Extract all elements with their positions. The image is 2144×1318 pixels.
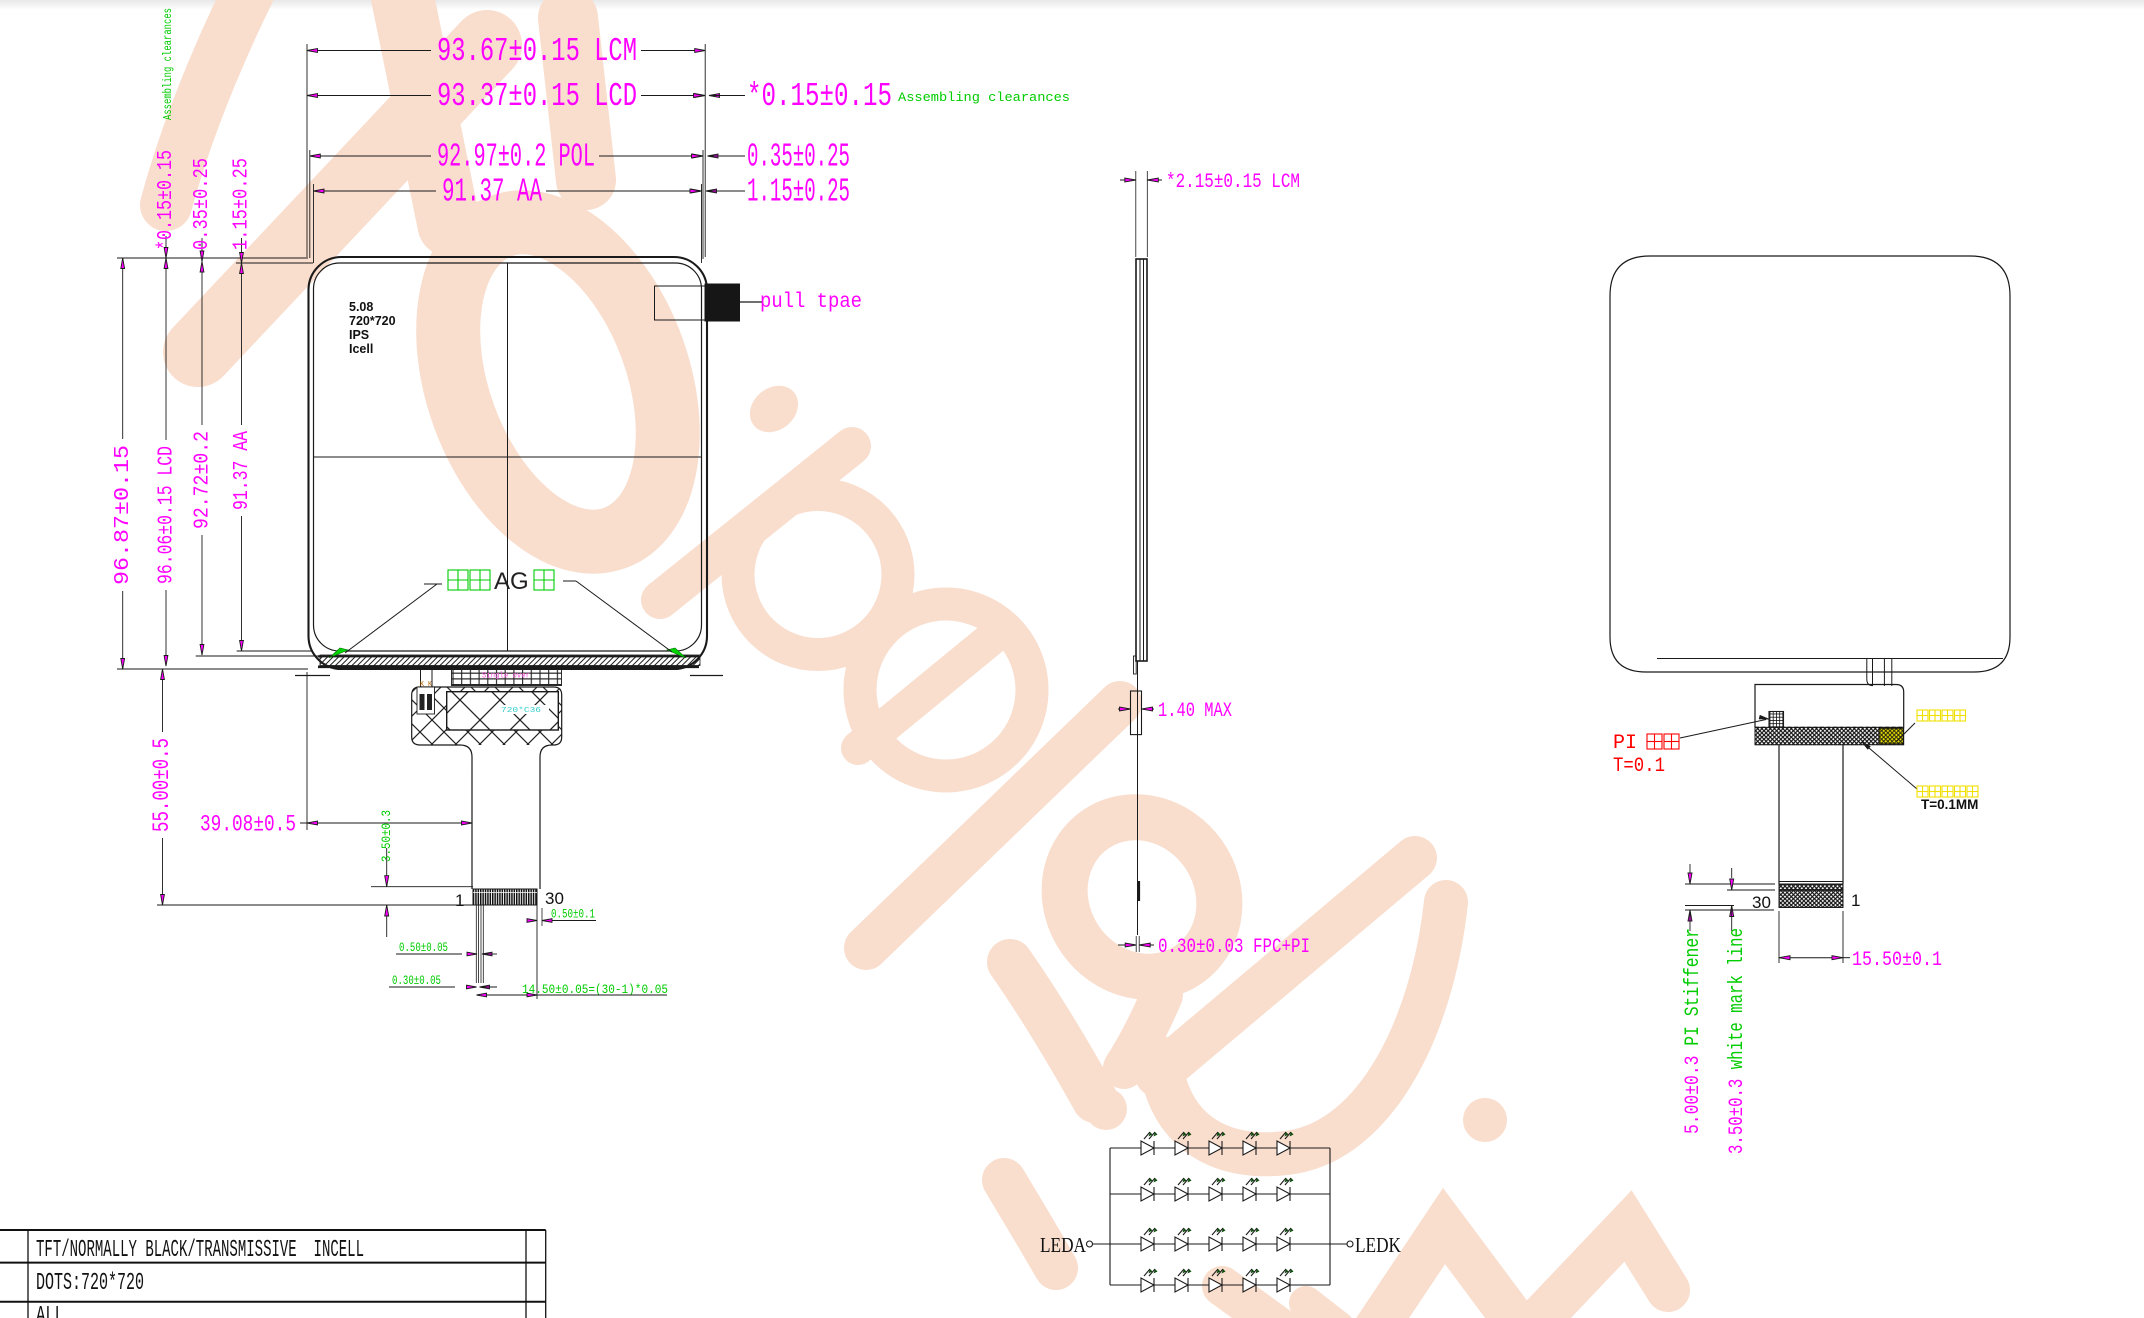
svg-text:1.15±0.25: 1.15±0.25 xyxy=(231,158,254,250)
svg-text:TFT/NORMALLY BLACK/TRANSMISSIV: TFT/NORMALLY BLACK/TRANSMISSIVE INCELL xyxy=(36,1237,364,1264)
svg-text:Single over: Single over xyxy=(482,672,530,681)
svg-text:*0.15±0.15: *0.15±0.15 xyxy=(155,150,178,250)
svg-text:*0.15±0.15: *0.15±0.15 xyxy=(747,78,892,115)
svg-text:93.37±0.15 LCD: 93.37±0.15 LCD xyxy=(437,78,637,115)
svg-text:93.67±0.15 LCM: 93.67±0.15 LCM xyxy=(437,33,637,70)
svg-text:39.08±0.5: 39.08±0.5 xyxy=(200,812,296,838)
svg-text:55.00±0.5: 55.00±0.5 xyxy=(149,738,175,832)
svg-text:0.35±0.25: 0.35±0.25 xyxy=(747,139,850,176)
svg-text:91.37 AA: 91.37 AA xyxy=(442,174,542,211)
svg-text:1.15±0.25: 1.15±0.25 xyxy=(747,174,850,211)
svg-text:Assembling clearances: Assembling clearances xyxy=(898,90,1070,105)
svg-text:IPS: IPS xyxy=(349,328,369,342)
svg-text:96.87±0.15: 96.87±0.15 xyxy=(112,445,135,585)
svg-text:PI: PI xyxy=(1613,732,1649,755)
svg-text:LEDA: LEDA xyxy=(1040,1233,1087,1257)
svg-text:91.37 AA: 91.37 AA xyxy=(231,431,254,510)
svg-text:92.97±0.2 POL: 92.97±0.2 POL xyxy=(437,139,595,176)
svg-text:1: 1 xyxy=(455,891,464,910)
svg-text:5.08: 5.08 xyxy=(349,300,373,314)
svg-text:720*720: 720*720 xyxy=(349,314,396,328)
svg-text:5.00±0.3 PI Stiffener: 5.00±0.3 PI Stiffener xyxy=(1682,928,1705,1134)
svg-text:720*C36: 720*C36 xyxy=(501,707,541,715)
svg-text:0.30±0.03 FPC+PI: 0.30±0.03 FPC+PI xyxy=(1158,936,1310,959)
svg-text:96.06±0.15 LCD: 96.06±0.15 LCD xyxy=(156,446,179,584)
svg-text:1.40 MAX: 1.40 MAX xyxy=(1158,700,1232,723)
svg-text:3.50±0.3 white mark line: 3.50±0.3 white mark line xyxy=(1726,928,1749,1154)
svg-text:0.50±0.05: 0.50±0.05 xyxy=(399,940,448,955)
svg-text:K K: K K xyxy=(420,681,433,689)
svg-text:3.50±0.3: 3.50±0.3 xyxy=(379,810,394,862)
svg-text:*2.15±0.15 LCM: *2.15±0.15 LCM xyxy=(1166,171,1300,194)
svg-text:Assembling clearances: Assembling clearances xyxy=(161,8,175,120)
svg-text:92.72±0.2: 92.72±0.2 xyxy=(192,431,215,529)
svg-text:pull tpae: pull tpae xyxy=(760,291,862,314)
svg-text:DOTS:720*720: DOTS:720*720 xyxy=(36,1270,144,1297)
svg-text:T=0.1MM: T=0.1MM xyxy=(1921,797,1978,812)
svg-text:30: 30 xyxy=(545,889,564,908)
svg-text:0.30±0.05: 0.30±0.05 xyxy=(392,973,441,988)
svg-text:15.50±0.1: 15.50±0.1 xyxy=(1852,949,1942,972)
svg-text:0.35±0.25: 0.35±0.25 xyxy=(191,158,214,250)
svg-text:30: 30 xyxy=(1752,893,1771,912)
svg-text:Icell: Icell xyxy=(349,342,373,356)
svg-text:1: 1 xyxy=(1851,891,1860,910)
svg-text:LEDK: LEDK xyxy=(1355,1233,1401,1257)
svg-text:0.50±0.1: 0.50±0.1 xyxy=(551,907,595,922)
svg-text:AG: AG xyxy=(494,568,529,595)
svg-text:ALL: ALL xyxy=(36,1303,64,1318)
svg-text:T=0.1: T=0.1 xyxy=(1613,755,1665,778)
